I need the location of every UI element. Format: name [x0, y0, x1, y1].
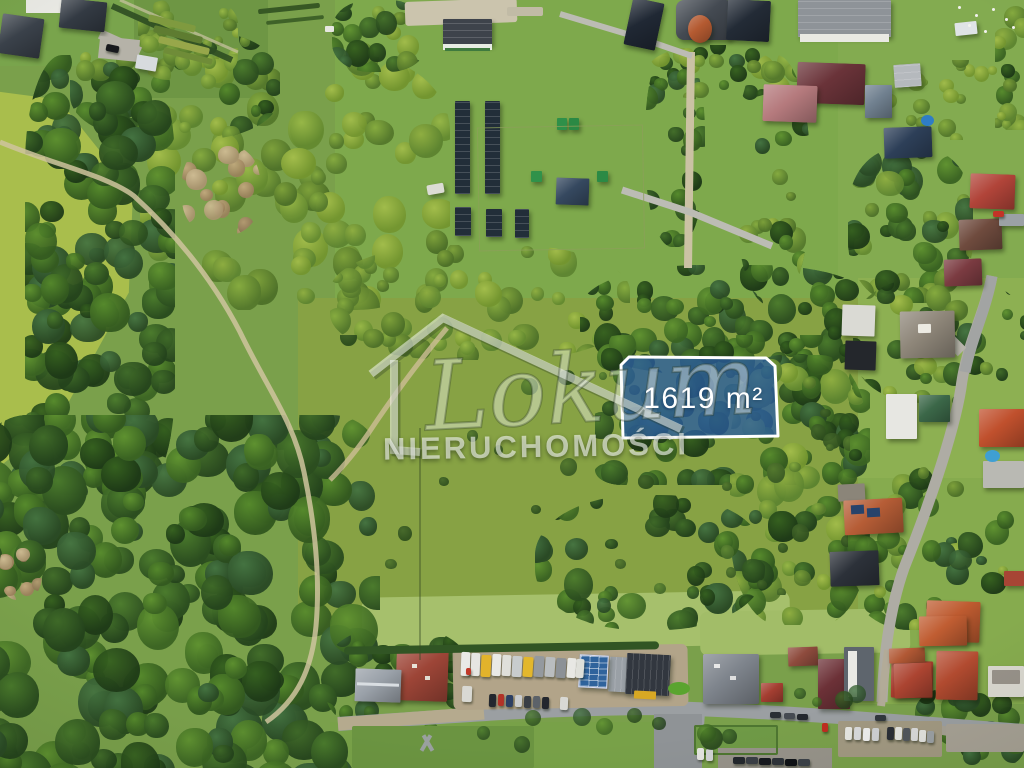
plot-area-label: 1619 m²	[629, 382, 778, 416]
white-dot	[984, 30, 987, 33]
white-dot	[1012, 26, 1015, 29]
tree-blob	[835, 691, 853, 709]
white-dot	[992, 8, 995, 11]
tree-blob	[525, 710, 542, 727]
white-dot	[958, 6, 961, 9]
tree-blob	[652, 717, 666, 731]
tree-blob	[573, 708, 591, 726]
tree-blob	[812, 697, 822, 707]
watermark-subtitle: NIERUCHOMOŚCI	[383, 428, 688, 465]
tree-blob	[514, 736, 530, 752]
tree-blob	[477, 726, 491, 740]
tree-blob	[697, 724, 716, 743]
decor-layer	[0, 0, 1024, 768]
white-dot	[968, 24, 971, 27]
tree-blob	[627, 708, 642, 723]
white-dot	[1005, 18, 1008, 21]
tree-blob	[596, 718, 613, 735]
white-dot	[975, 14, 978, 17]
tree-blob	[794, 688, 806, 700]
tree-blob	[722, 729, 736, 743]
aerial-photo: Lokum 1619 m² NIERUCHOMOŚCI	[0, 0, 1024, 768]
